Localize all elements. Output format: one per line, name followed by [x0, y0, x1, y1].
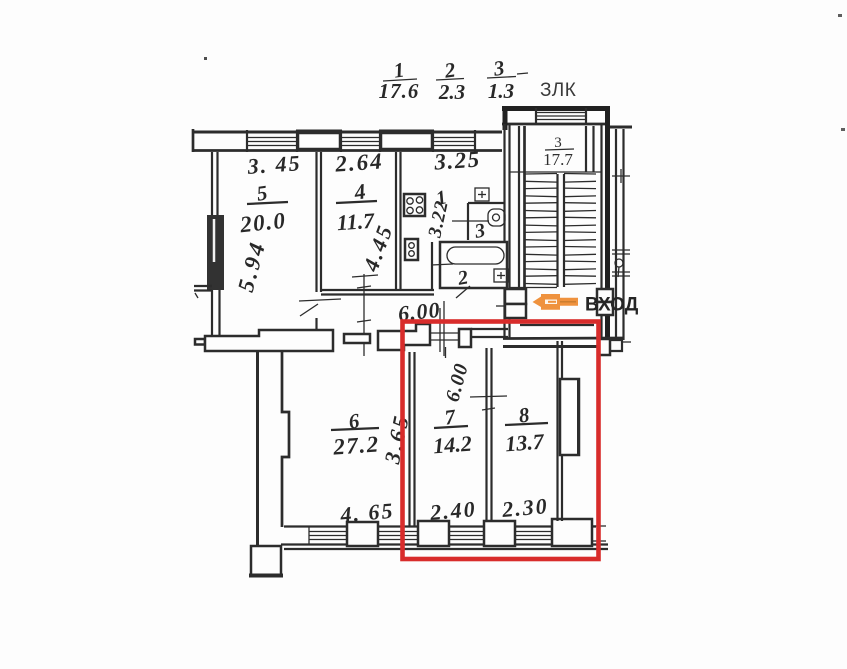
svg-text:2.30: 2.30: [500, 493, 549, 522]
svg-text:2.40: 2.40: [428, 496, 477, 525]
svg-text:13.7: 13.7: [504, 429, 545, 457]
svg-text:3.25: 3.25: [433, 146, 482, 174]
svg-text:17.6: 17.6: [379, 79, 420, 103]
svg-text:ВХОД: ВХОД: [585, 295, 639, 316]
svg-text:17.7: 17.7: [543, 150, 573, 169]
svg-text:3: 3: [554, 135, 562, 151]
svg-text:27.2: 27.2: [332, 431, 381, 459]
svg-text:4. 65: 4. 65: [338, 498, 395, 528]
svg-text:2.64: 2.64: [334, 148, 385, 176]
svg-text:3. 45: 3. 45: [246, 150, 303, 179]
svg-text:14.2: 14.2: [432, 431, 472, 459]
svg-text:ЗЛК: ЗЛК: [540, 80, 576, 101]
svg-text:1.3: 1.3: [488, 79, 514, 103]
svg-text:2.3: 2.3: [438, 80, 465, 104]
svg-text:20.0: 20.0: [238, 208, 288, 238]
